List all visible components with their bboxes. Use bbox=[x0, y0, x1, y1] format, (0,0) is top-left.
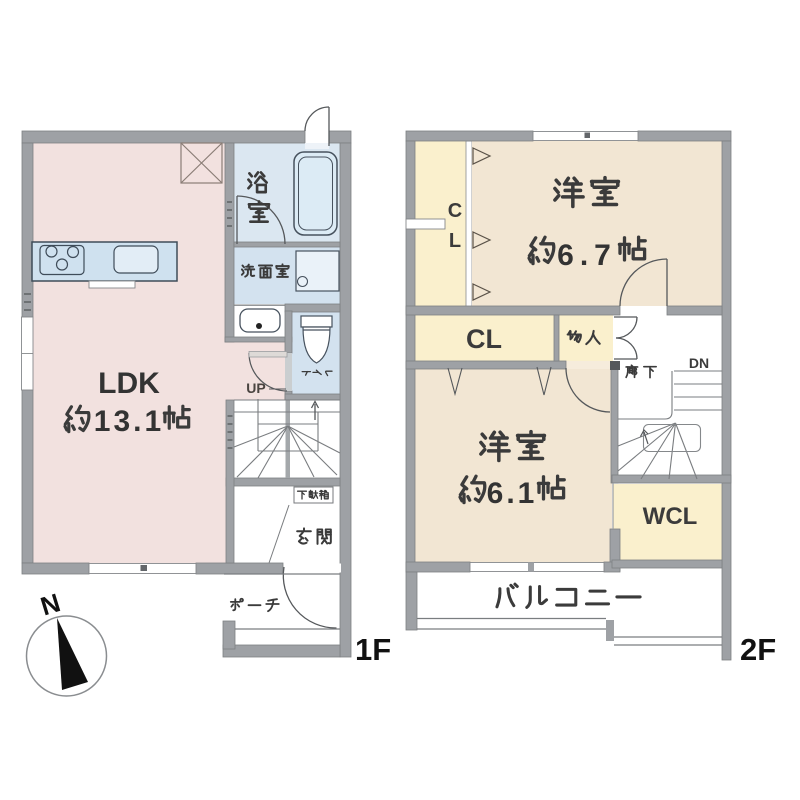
svg-text:1F: 1F bbox=[355, 632, 391, 667]
svg-text:DN: DN bbox=[689, 355, 709, 371]
svg-text:2F: 2F bbox=[740, 632, 776, 667]
svg-text:UP: UP bbox=[246, 380, 265, 396]
svg-text:6.7: 6.7 bbox=[557, 239, 617, 272]
svg-text:N: N bbox=[37, 587, 64, 621]
svg-text:6.1: 6.1 bbox=[487, 477, 538, 510]
svg-text:CL: CL bbox=[466, 324, 502, 354]
svg-text:WCL: WCL bbox=[643, 503, 698, 530]
svg-text:L: L bbox=[449, 230, 461, 252]
svg-text:13.1: 13.1 bbox=[94, 405, 164, 438]
svg-text:LDK: LDK bbox=[98, 367, 160, 400]
svg-text:C: C bbox=[448, 200, 462, 222]
